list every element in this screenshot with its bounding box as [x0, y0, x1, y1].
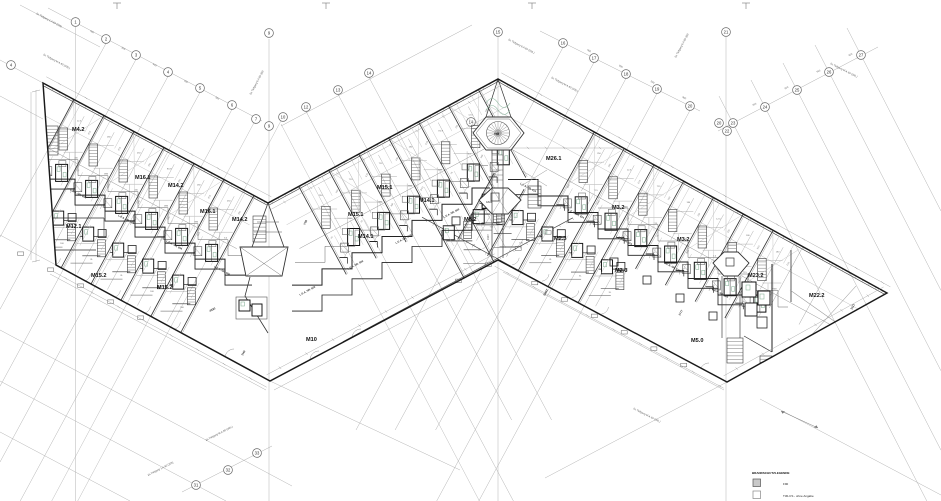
svg-text:T30-CS - ohne Angabe: T30-CS - ohne Angabe [783, 494, 814, 498]
svg-text:M15.2: M15.2 [91, 273, 107, 279]
svg-text:23: 23 [731, 121, 736, 126]
svg-text:21: 21 [724, 30, 729, 35]
svg-text:M3.2: M3.2 [612, 205, 624, 211]
svg-text:33: 33 [255, 451, 260, 456]
svg-text:M15.2: M15.2 [157, 285, 173, 291]
svg-text:E0.9: E0.9 [439, 131, 444, 133]
svg-text:M16.1: M16.1 [200, 209, 216, 215]
svg-text:M23.2: M23.2 [748, 273, 764, 279]
svg-text:M4.2: M4.2 [72, 127, 84, 133]
svg-text:F90: F90 [783, 482, 789, 486]
svg-text:M10: M10 [306, 337, 317, 343]
svg-text:M14.1: M14.1 [419, 198, 435, 204]
svg-text:WM: WM [408, 186, 412, 188]
svg-text:BRANDSCHUTZLEGENDE: BRANDSCHUTZLEGENDE [752, 471, 790, 475]
svg-text:15: 15 [496, 30, 501, 35]
svg-text:24: 24 [763, 105, 768, 110]
svg-text:E0.9: E0.9 [167, 169, 172, 171]
svg-text:M22.2: M22.2 [809, 293, 825, 299]
svg-text:26: 26 [827, 70, 832, 75]
svg-text:WM: WM [104, 174, 108, 176]
svg-text:10: 10 [281, 115, 286, 120]
svg-text:22: 22 [725, 129, 730, 134]
svg-text:32: 32 [226, 468, 231, 473]
svg-text:17: 17 [592, 56, 597, 61]
svg-text:12: 12 [304, 105, 309, 110]
svg-text:M2.3: M2.3 [615, 268, 627, 274]
svg-text:31: 31 [194, 483, 199, 488]
svg-text:25: 25 [795, 88, 800, 93]
svg-text:18: 18 [624, 72, 629, 77]
svg-text:4.6.0: 4.6.0 [486, 200, 492, 204]
svg-text:M15.1: M15.1 [348, 212, 364, 218]
svg-text:14: 14 [367, 71, 372, 76]
svg-text:19: 19 [655, 87, 660, 92]
svg-text:M14.1: M14.1 [358, 234, 374, 240]
svg-text:M16.1: M16.1 [135, 175, 151, 181]
svg-text:M14.2: M14.2 [168, 183, 184, 189]
svg-text:WM: WM [164, 206, 168, 208]
svg-text:M14.2: M14.2 [232, 217, 248, 223]
svg-text:3107: 3107 [486, 234, 490, 240]
svg-text:T83: T83 [494, 132, 500, 136]
svg-text:20: 20 [688, 104, 693, 109]
svg-text:M8.2: M8.2 [464, 217, 476, 223]
svg-text:20: 20 [717, 121, 722, 126]
svg-text:16: 16 [561, 41, 566, 46]
svg-text:M3.2: M3.2 [677, 237, 689, 243]
svg-text:M15.1: M15.1 [377, 185, 393, 191]
svg-text:13: 13 [336, 88, 341, 93]
svg-text:27: 27 [859, 53, 864, 58]
svg-text:M5.0: M5.0 [691, 338, 703, 344]
svg-text:M12.1: M12.1 [66, 224, 82, 230]
svg-text:M2.3: M2.3 [554, 236, 566, 242]
svg-text:M26.1: M26.1 [546, 156, 562, 162]
